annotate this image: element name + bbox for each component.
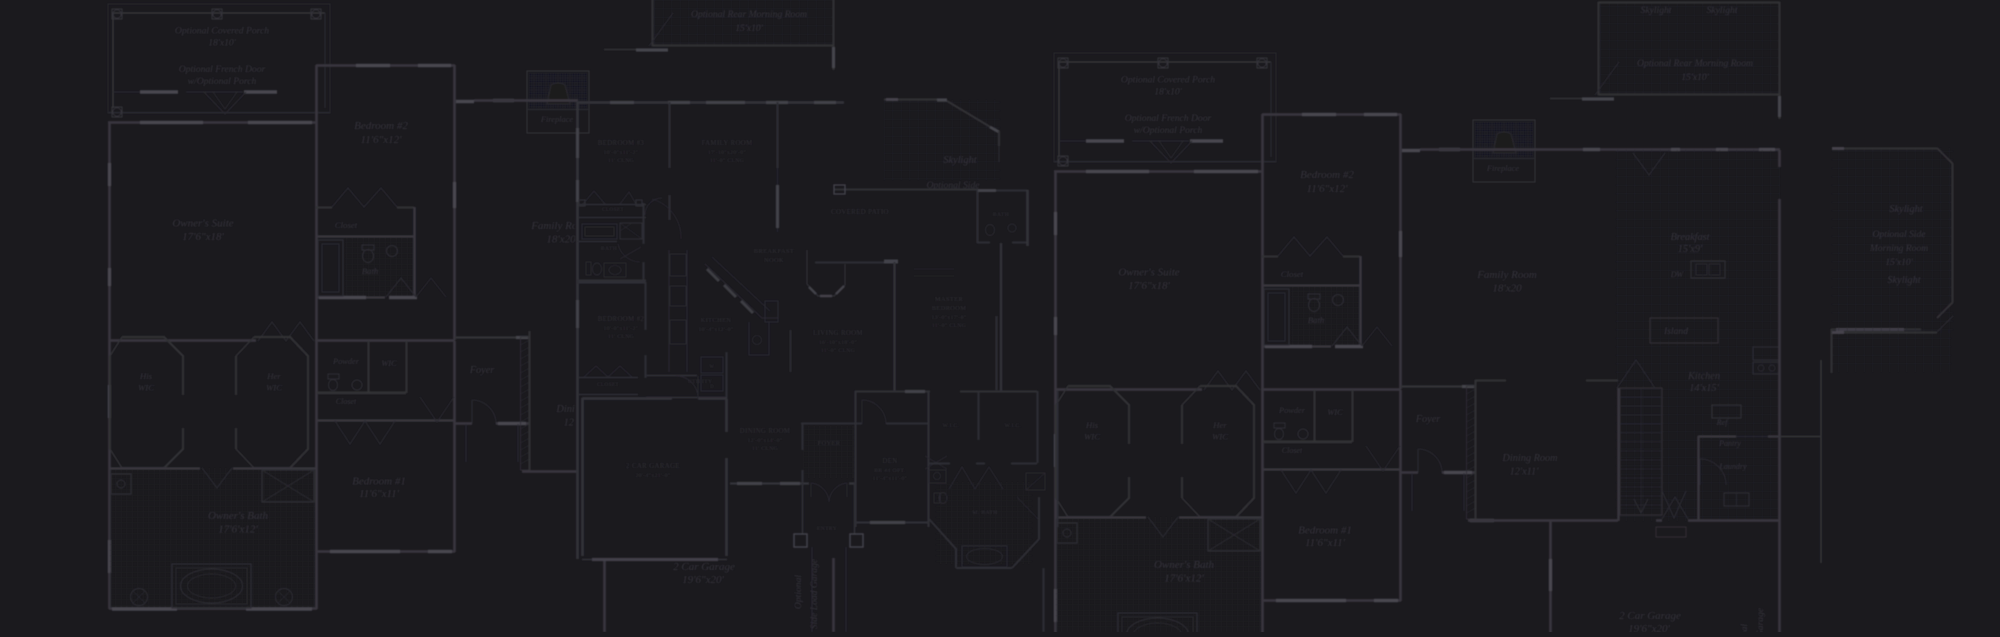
svg-text:Optional: Optional [1739,624,1750,632]
svg-text:DINING ROOM: DINING ROOM [740,428,791,435]
svg-text:14'x15': 14'x15' [1689,383,1719,394]
svg-text:Bedroom #1: Bedroom #1 [1298,525,1352,537]
svg-text:Kitchen: Kitchen [1687,371,1720,382]
svg-text:18'x20: 18'x20 [1492,283,1522,295]
svg-text:17'6'x12': 17'6'x12' [218,524,258,536]
svg-text:17'6'x12': 17'6'x12' [1164,573,1204,585]
svg-text:WIC: WIC [266,383,282,393]
svg-text:Optional Covered Porch: Optional Covered Porch [1121,75,1215,86]
svg-text:Skylight: Skylight [1707,5,1738,16]
svg-text:11'6"x11': 11'6"x11' [1305,537,1346,549]
svg-text:Bedroom #1: Bedroom #1 [352,476,406,488]
svg-text:BREAKFAST: BREAKFAST [754,248,794,255]
svg-text:11'-0" CLNG: 11'-0" CLNG [821,348,855,354]
svg-text:Foyer: Foyer [1415,414,1442,425]
svg-text:Powder: Powder [1278,406,1306,415]
svg-text:KITCHEN: KITCHEN [701,317,732,324]
svg-text:Skylight: Skylight [1887,275,1921,286]
svg-text:11'6"x12': 11'6"x12' [1307,183,1349,195]
svg-text:FOYER: FOYER [818,440,841,447]
svg-text:BR #4 OPT.: BR #4 OPT. [874,468,906,474]
svg-text:Pantry: Pantry [1718,439,1741,448]
svg-text:11'6"x12': 11'6"x12' [361,134,403,146]
svg-text:2 Car Garage: 2 Car Garage [673,561,735,573]
svg-text:11'-4"x11'-0": 11'-4"x11'-0" [873,476,908,482]
svg-text:BATH: BATH [601,246,617,252]
svg-text:Owner's Bath: Owner's Bath [1154,559,1215,571]
svg-text:10'-0"x11'-2": 10'-0"x11'-2" [604,150,639,156]
svg-text:Her: Her [1212,420,1227,430]
svg-text:19'6"x20': 19'6"x20' [1628,623,1670,632]
svg-text:W.I.C.: W.I.C. [1005,423,1022,429]
svg-text:11' CLNG: 11' CLNG [608,158,634,164]
svg-text:CLOSET: CLOSET [597,382,619,388]
svg-text:w/Optional Porch: w/Optional Porch [188,76,257,87]
svg-text:Owner's Suite: Owner's Suite [1118,267,1179,279]
svg-text:2 Car Garage: 2 Car Garage [1619,610,1681,622]
svg-text:Foyer: Foyer [469,365,496,376]
svg-text:Skylight: Skylight [1889,204,1923,215]
svg-text:WIC: WIC [1327,408,1343,417]
svg-text:MASTER: MASTER [935,296,964,303]
svg-text:Bedroom #2: Bedroom #2 [1300,169,1354,181]
svg-text:Owner's Suite: Owner's Suite [172,218,233,230]
svg-text:His: His [1085,420,1099,430]
svg-text:11' CLNG: 11' CLNG [752,446,778,452]
svg-text:WIC: WIC [1084,432,1100,442]
svg-text:BEDROOM: BEDROOM [932,305,967,312]
svg-text:w/Optional Porch: w/Optional Porch [1134,125,1203,136]
svg-text:COVERED PATIO: COVERED PATIO [831,209,889,216]
svg-text:11' CLNG: 11' CLNG [608,334,634,340]
svg-text:DW: DW [1670,270,1685,279]
svg-text:W.I.C.: W.I.C. [943,423,960,429]
svg-text:18'x20: 18'x20 [546,234,576,246]
svg-text:17'6"x18': 17'6"x18' [182,231,224,243]
svg-text:BATH: BATH [993,212,1009,218]
svg-text:Closet: Closet [1281,269,1304,279]
svg-text:W: W [710,365,715,370]
svg-text:Optional Rear Morning Room: Optional Rear Morning Room [691,9,807,20]
svg-text:Her: Her [266,371,281,381]
svg-text:17'6"x18': 17'6"x18' [1128,280,1170,292]
svg-text:Side Load Garage: Side Load Garage [1755,607,1766,632]
svg-text:18'x10': 18'x10' [208,38,236,49]
svg-text:15'x9': 15'x9' [1678,244,1703,255]
svg-text:Optional Covered Porch: Optional Covered Porch [175,26,269,37]
svg-text:BEDROOM #2: BEDROOM #2 [598,316,645,323]
svg-text:Closet: Closet [335,220,358,230]
svg-text:Optional: Optional [793,575,804,609]
svg-text:Optional Rear Morning Room: Optional Rear Morning Room [1637,58,1753,69]
svg-text:11'-0" CLNG: 11'-0" CLNG [932,323,966,329]
svg-text:Bath: Bath [1308,315,1325,325]
svg-text:10'-4"x12'-0": 10'-4"x12'-0" [698,327,733,333]
svg-text:Bedroom #2: Bedroom #2 [354,120,408,132]
svg-text:Powder: Powder [332,357,360,366]
svg-text:Fireplace: Fireplace [540,115,574,124]
svg-text:Family Room: Family Room [1476,269,1537,281]
svg-text:FAMILY ROOM: FAMILY ROOM [701,140,752,147]
svg-text:Closet: Closet [336,397,357,406]
svg-text:WIC: WIC [1212,432,1228,442]
svg-text:Closet: Closet [1282,446,1303,455]
svg-text:WIC: WIC [381,359,397,368]
svg-text:11'6"x11': 11'6"x11' [359,488,400,500]
svg-text:Optional Side: Optional Side [1872,229,1926,240]
svg-text:17'-10"x20'-0": 17'-10"x20'-0" [708,150,746,156]
svg-text:Breakfast: Breakfast [1670,232,1710,243]
svg-text:Side Load Garage: Side Load Garage [809,558,820,629]
svg-text:20'-4"x21'-0": 20'-4"x21'-0" [635,473,670,479]
svg-text:Skylight: Skylight [1641,5,1672,16]
svg-text:His: His [139,371,153,381]
svg-text:Ref: Ref [1716,418,1729,427]
svg-text:BEDROOM #3: BEDROOM #3 [598,140,645,147]
svg-text:Fireplace: Fireplace [1486,164,1520,173]
svg-text:Morning Room: Morning Room [1869,243,1928,254]
svg-text:LIVING ROOM: LIVING ROOM [813,330,863,337]
svg-text:ENTRY: ENTRY [817,526,837,532]
svg-text:11'-0" CLNG: 11'-0" CLNG [710,158,744,164]
svg-text:18'x10': 18'x10' [1154,87,1182,98]
svg-text:Optional French Door: Optional French Door [1125,113,1212,124]
svg-text:Optional French Door: Optional French Door [179,64,266,75]
svg-text:CLOSET: CLOSET [602,207,624,213]
svg-text:12'-0"x14'-0": 12'-0"x14'-0" [747,438,782,444]
svg-text:WIC: WIC [138,383,154,393]
svg-text:Island: Island [1663,326,1688,337]
svg-text:15'x10': 15'x10' [1885,257,1913,268]
svg-text:13'-0"x17'-8": 13'-0"x17'-8" [931,315,966,321]
svg-text:Dining Room: Dining Room [1501,453,1557,464]
svg-text:2 CAR GARAGE: 2 CAR GARAGE [626,463,680,470]
svg-text:NOOK: NOOK [764,257,784,264]
svg-text:D: D [710,385,714,390]
svg-text:10'-0"x11'-2": 10'-0"x11'-2" [604,326,639,332]
svg-text:Skylight: Skylight [943,155,977,166]
svg-text:Bath: Bath [362,266,379,276]
svg-text:16'-10"x18'-0": 16'-10"x18'-0" [819,340,857,346]
svg-text:15'x10': 15'x10' [1681,72,1709,83]
svg-text:Laundry: Laundry [1718,462,1747,471]
svg-text:DEN: DEN [882,458,897,465]
svg-text:12'x11': 12'x11' [1510,467,1540,478]
svg-text:Owner's Bath: Owner's Bath [208,510,269,522]
svg-text:19'6"x20': 19'6"x20' [682,574,724,586]
svg-text:15'x10': 15'x10' [735,23,763,34]
